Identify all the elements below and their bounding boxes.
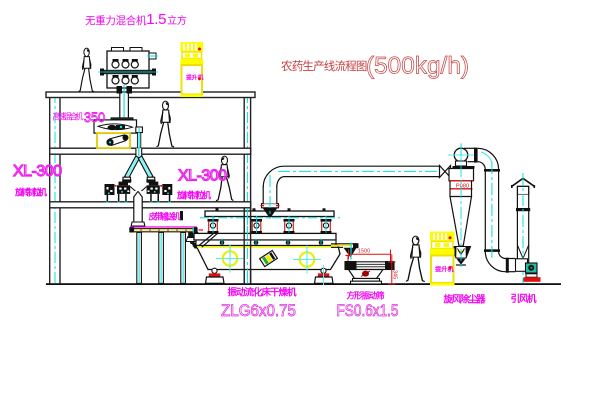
svg-text:方形振动筛: 方形振动筛 [347, 291, 385, 301]
svg-text:P080: P080 [456, 183, 469, 189]
svg-text:引风机: 引风机 [511, 293, 537, 305]
svg-text:FS0.6x1.5: FS0.6x1.5 [337, 302, 399, 320]
svg-text:345: 345 [392, 270, 398, 279]
svg-text:旋转制粒机: 旋转制粒机 [14, 187, 47, 198]
svg-text:旋风除尘器: 旋风除尘器 [443, 294, 486, 306]
svg-text:(500kg/h): (500kg/h) [366, 53, 469, 80]
svg-text:ZLG6x0.75: ZLG6x0.75 [221, 302, 296, 320]
svg-text:提升机: 提升机 [186, 74, 204, 82]
svg-text:1500: 1500 [358, 249, 370, 255]
svg-text:提升机: 提升机 [435, 266, 454, 274]
svg-text:XL-300: XL-300 [178, 168, 227, 185]
svg-text:XL-300: XL-300 [13, 163, 62, 180]
svg-text:振动流化床干燥机: 振动流化床干燥机 [228, 287, 297, 299]
svg-text:农药生产线流程图: 农药生产线流程图 [281, 59, 367, 73]
svg-text:350: 350 [84, 109, 105, 125]
svg-text:旋转制粒机: 旋转制粒机 [176, 190, 211, 201]
svg-text:高速混合机: 高速混合机 [53, 112, 84, 122]
svg-text:皮带输送机: 皮带输送机 [148, 212, 181, 222]
